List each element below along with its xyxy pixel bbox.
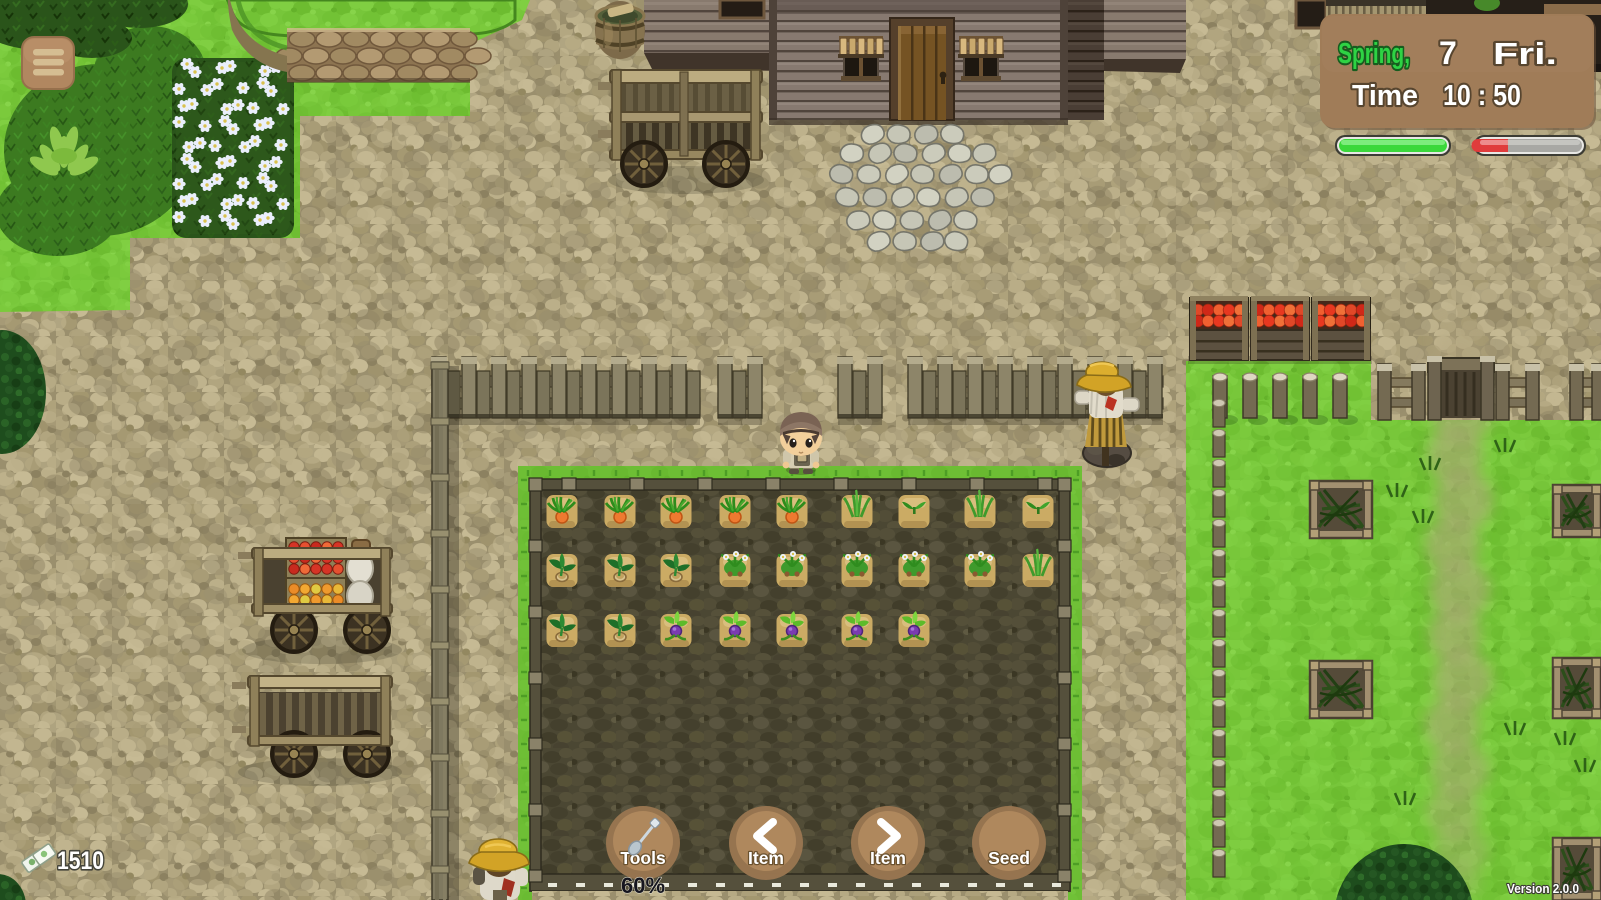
svg-text:1510: 1510 [57, 847, 104, 875]
svg-text:Version 2.0.0: Version 2.0.0 [1507, 882, 1579, 896]
svg-text:10 : 50: 10 : 50 [1443, 80, 1521, 112]
svg-text:Seed: Seed [988, 848, 1030, 868]
svg-text:Item: Item [748, 848, 784, 868]
svg-text:Tools: Tools [620, 848, 666, 868]
svg-text:7: 7 [1439, 35, 1457, 71]
svg-text:Item: Item [870, 848, 906, 868]
svg-text:60%: 60% [621, 873, 665, 898]
svg-text:Time: Time [1352, 80, 1418, 112]
svg-text:Fri.: Fri. [1493, 36, 1557, 71]
svg-text:Spring,: Spring, [1338, 38, 1410, 70]
